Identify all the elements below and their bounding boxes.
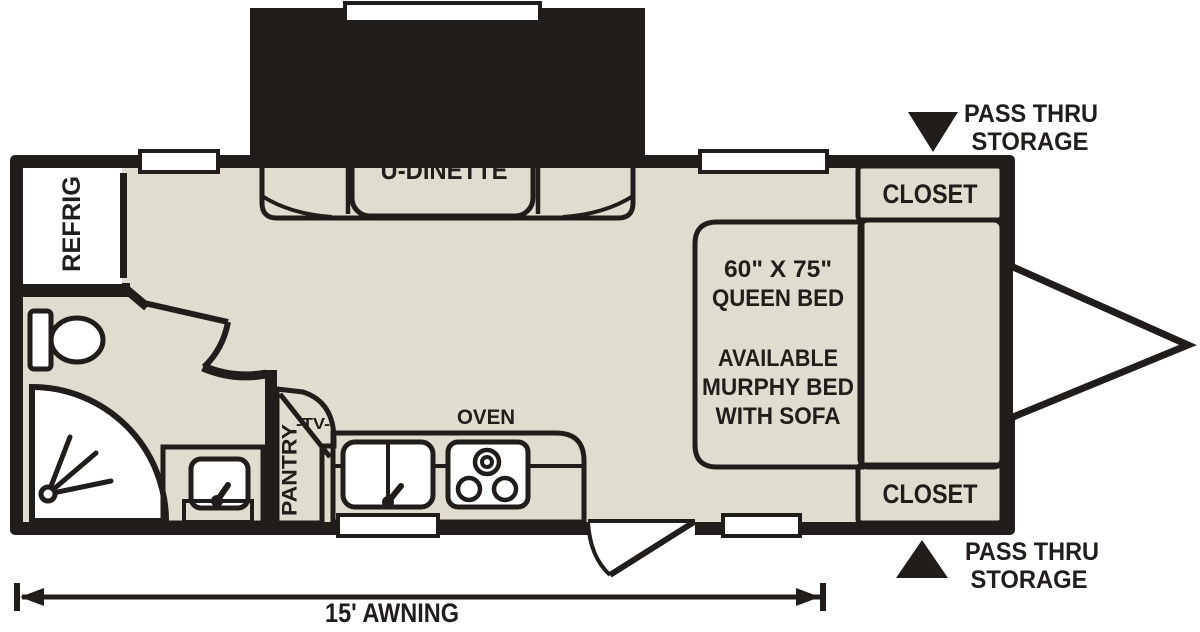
toilet-tank xyxy=(30,311,51,369)
closet-upper-label: CLOSET xyxy=(883,179,978,209)
bed-size-label: 60" X 75" xyxy=(724,256,832,283)
galley-window xyxy=(140,151,218,172)
kitchen-window xyxy=(338,515,438,536)
toilet-bowl xyxy=(51,318,103,362)
bed-option-label-3: WITH SOFA xyxy=(716,403,841,430)
pass-thru-bottom-label-line1: PASS THRU xyxy=(965,538,1099,566)
pass-thru-bottom-label-line2: STORAGE xyxy=(971,566,1088,594)
dinette-label: U-DINETTE xyxy=(381,155,508,185)
pantry-label: PANTRY xyxy=(279,424,302,516)
bed-option-label-1: AVAILABLE xyxy=(718,345,838,372)
galley-wall xyxy=(265,370,277,535)
bathroom-wall xyxy=(10,283,130,297)
vanity-faucet-icon xyxy=(211,495,223,507)
bed-option-label-2: MURPHY BED xyxy=(702,374,854,401)
closet-lower-label: CLOSET xyxy=(883,479,978,509)
slideout-window xyxy=(345,3,540,22)
awning-dimension-end-right xyxy=(820,583,826,611)
awning-dimension-end-left xyxy=(14,583,20,611)
bedroom-window xyxy=(700,151,827,172)
oven-label: OVEN xyxy=(457,406,515,429)
shower-head-icon xyxy=(41,487,55,501)
pass-thru-top-label-line1: PASS THRU xyxy=(964,100,1098,128)
slideout-wall xyxy=(250,8,645,168)
pass-thru-top-label-line2: STORAGE xyxy=(972,128,1089,156)
floor-plan: U-DINETTE CLOSET CLOSET 60" X 75" QUEEN … xyxy=(0,0,1200,632)
bed-type-label: QUEEN BED xyxy=(712,285,844,312)
refrigerator-door-line xyxy=(120,173,127,278)
awning-label: 15' AWNING xyxy=(325,598,459,628)
floor-plan-page: U-DINETTE CLOSET CLOSET 60" X 75" QUEEN … xyxy=(0,0,1200,632)
refrigerator-label: REFRIG xyxy=(58,176,86,272)
bedroom-lower-window xyxy=(723,515,800,536)
